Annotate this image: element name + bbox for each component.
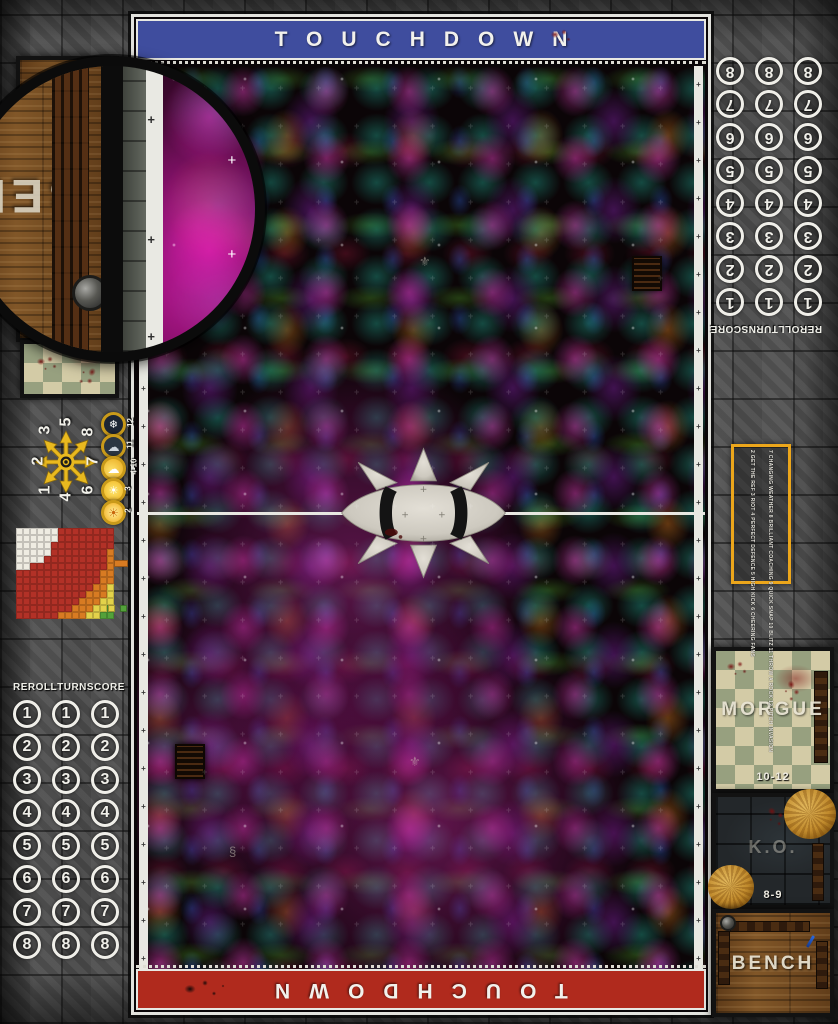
track-row: 888 <box>716 57 822 85</box>
grid-crosshair-icon: + <box>316 159 321 169</box>
range-cell <box>93 549 100 556</box>
svg-text:+: + <box>420 534 428 545</box>
grid-crosshair-icon: + <box>506 805 511 815</box>
sideline-tick-icon: + <box>694 270 703 279</box>
track-row: 444 <box>716 189 822 217</box>
track-number-cell: 2 <box>794 255 822 283</box>
range-cell <box>30 542 37 549</box>
hay-bale-icon <box>708 865 754 909</box>
grid-crosshair-icon: + <box>620 691 625 701</box>
grid-crosshair-icon: + <box>582 805 587 815</box>
grid-crosshair-icon: + <box>278 615 283 625</box>
grid-crosshair-icon: + <box>468 729 473 739</box>
grid-crosshair-icon: + <box>658 881 663 891</box>
grid-crosshair-icon: + <box>658 805 663 815</box>
grid-crosshair-icon: + <box>278 387 283 397</box>
grid-crosshair-icon: + <box>354 805 359 815</box>
range-cell <box>65 591 72 598</box>
range-cell <box>58 542 65 549</box>
grid-crosshair-icon: + <box>278 235 283 245</box>
range-cell <box>44 584 51 591</box>
grid-crosshair-icon: + <box>354 197 359 207</box>
grid-crosshair-icon: + <box>164 805 169 815</box>
grid-crosshair-icon: + <box>544 159 549 169</box>
grid-crosshair-icon: + <box>316 881 321 891</box>
grid-crosshair-icon: + <box>582 83 587 93</box>
grid-crosshair-icon: + <box>354 539 359 549</box>
range-cell <box>44 542 51 549</box>
grid-crosshair-icon: + <box>544 539 549 549</box>
grid-crosshair-icon: + <box>620 349 625 359</box>
range-cell <box>93 542 100 549</box>
grid-crosshair-icon: + <box>278 805 283 815</box>
range-cell <box>72 584 79 591</box>
grid-crosshair-icon: + <box>544 83 549 93</box>
grid-crosshair-icon: + <box>316 691 321 701</box>
range-cell <box>16 528 23 535</box>
range-cell <box>30 605 37 612</box>
grid-crosshair-icon: + <box>240 805 245 815</box>
range-cell <box>72 577 79 584</box>
grid-crosshair-icon: + <box>506 653 511 663</box>
range-cell <box>79 598 86 605</box>
svg-text:+: + <box>401 510 409 521</box>
dugout-right-morgue: MORGUE 10-12 <box>712 647 834 793</box>
range-cell <box>100 577 107 584</box>
track-number-cell: 1 <box>755 288 783 316</box>
grid-crosshair-icon: + <box>278 121 283 131</box>
sideline-tick-icon: + <box>694 688 703 697</box>
grid-crosshair-icon: + <box>354 919 359 929</box>
pass-range-ruler <box>16 528 114 619</box>
grid-crosshair-icon: + <box>392 349 397 359</box>
range-cell <box>58 528 65 535</box>
grid-crosshair-icon: + <box>430 691 435 701</box>
grid-crosshair-icon: + <box>544 691 549 701</box>
range-legend-long <box>114 560 128 567</box>
weather-range-label: 11 <box>126 440 135 448</box>
grid-crosshair-icon: + <box>506 919 511 929</box>
scatter-direction-number: 8 <box>79 428 97 437</box>
grid-crosshair-icon: + <box>582 691 587 701</box>
range-cell <box>93 528 100 535</box>
crosshair-icon: + <box>228 246 237 263</box>
grid-crosshair-icon: + <box>544 197 549 207</box>
dugout-right-ko: K.O. 8-9 <box>712 793 834 909</box>
morgue-range-label: 10-12 <box>716 771 830 783</box>
range-cell <box>30 612 37 619</box>
kickoff-table-text: 7 CHANGING WEATHER 8 BRILLIANT COACHING … <box>737 450 785 578</box>
ko-label: K.O. <box>716 837 830 858</box>
track-number-cell: 2 <box>52 733 80 761</box>
sideline-tick-icon: + <box>694 878 703 887</box>
track-number-cell: 7 <box>755 90 783 118</box>
range-cell <box>72 563 79 570</box>
grid-crosshair-icon: + <box>392 881 397 891</box>
grid-crosshair-icon: + <box>316 615 321 625</box>
grid-crosshair-icon: + <box>392 729 397 739</box>
range-cell <box>58 605 65 612</box>
range-cell <box>79 612 86 619</box>
grid-crosshair-icon: + <box>620 273 625 283</box>
grid-crosshair-icon: + <box>354 235 359 245</box>
range-cell <box>58 591 65 598</box>
grid-crosshair-icon: + <box>240 463 245 473</box>
grid-crosshair-icon: + <box>468 653 473 663</box>
track-row: 111 <box>13 700 119 728</box>
range-cell <box>23 605 30 612</box>
grid-crosshair-icon: + <box>430 425 435 435</box>
track-number-cell: 4 <box>716 189 744 217</box>
grid-crosshair-icon: + <box>392 83 397 93</box>
grid-crosshair-icon: + <box>430 387 435 397</box>
range-cell <box>37 542 44 549</box>
crest-glyph-icon: ⚜ <box>419 254 431 270</box>
grid-crosshair-icon: + <box>620 235 625 245</box>
grid-crosshair-icon: + <box>468 425 473 435</box>
range-cell <box>23 598 30 605</box>
sideline-tick-icon: + <box>694 460 703 469</box>
grid-crosshair-icon: + <box>354 273 359 283</box>
range-cell <box>51 528 58 535</box>
pen-mark-icon <box>806 935 815 948</box>
grid-crosshair-icon: + <box>506 767 511 777</box>
grid-crosshair-icon: + <box>278 425 283 435</box>
grid-crosshair-icon: + <box>430 653 435 663</box>
morgue-label: MORGUE <box>716 699 830 721</box>
range-cell <box>30 570 37 577</box>
range-cell <box>86 598 93 605</box>
sideline-tick-icon: + <box>694 726 703 735</box>
grid-crosshair-icon: + <box>202 539 207 549</box>
grid-crosshair-icon: + <box>544 349 549 359</box>
range-cell <box>30 591 37 598</box>
sideline-tick-icon: + <box>694 954 703 963</box>
grid-crosshair-icon: + <box>658 197 663 207</box>
crosshair-icon: + <box>147 232 155 247</box>
range-cell <box>100 563 107 570</box>
grid-crosshair-icon: + <box>392 387 397 397</box>
range-cell <box>79 577 86 584</box>
range-cell <box>86 528 93 535</box>
range-cell <box>65 542 72 549</box>
grid-crosshair-icon: + <box>620 843 625 853</box>
grid-crosshair-icon: + <box>620 425 625 435</box>
range-cell <box>72 570 79 577</box>
hay-bale-icon <box>784 789 836 839</box>
range-cell <box>79 584 86 591</box>
track-row: 333 <box>716 222 822 250</box>
range-cell <box>72 542 79 549</box>
track-number-cell: 4 <box>755 189 783 217</box>
range-cell <box>72 549 79 556</box>
sideline-tick-icon: + <box>139 726 148 735</box>
grid-crosshair-icon: + <box>240 425 245 435</box>
range-cell <box>79 570 86 577</box>
range-cell <box>79 605 86 612</box>
track-row: 888 <box>13 931 119 959</box>
grid-crosshair-icon: + <box>430 463 435 473</box>
range-cell <box>16 535 23 542</box>
range-cell <box>58 584 65 591</box>
grid-crosshair-icon: + <box>582 463 587 473</box>
grid-crosshair-icon: + <box>202 767 207 777</box>
grid-crosshair-icon: + <box>506 501 511 511</box>
reroll-header: REROLL <box>778 323 822 334</box>
track-number-cell: 4 <box>52 799 80 827</box>
range-cell <box>58 563 65 570</box>
track-number-cell: 8 <box>755 57 783 85</box>
grid-crosshair-icon: + <box>468 767 473 777</box>
grid-crosshair-icon: + <box>392 653 397 663</box>
grid-crosshair-icon: + <box>506 273 511 283</box>
grid-crosshair-icon: + <box>468 881 473 891</box>
grid-crosshair-icon: + <box>202 729 207 739</box>
grid-crosshair-icon: + <box>164 539 169 549</box>
grid-crosshair-icon: + <box>164 615 169 625</box>
range-cell <box>16 598 23 605</box>
skull-glyph-icon: ⚜ <box>409 754 421 770</box>
grid-crosshair-icon: + <box>506 425 511 435</box>
scatter-direction-number: 4 <box>57 493 75 502</box>
sideline-tick-icon: + <box>694 80 703 89</box>
grid-crosshair-icon: + <box>164 881 169 891</box>
range-cell <box>51 549 58 556</box>
grid-crosshair-icon: + <box>658 919 663 929</box>
sideline-tick-icon: + <box>694 916 703 925</box>
grid-crosshair-icon: + <box>316 501 321 511</box>
range-cell <box>93 535 100 542</box>
grid-crosshair-icon: + <box>202 577 207 587</box>
grid-crosshair-icon: + <box>582 425 587 435</box>
range-cell <box>44 570 51 577</box>
grid-crosshair-icon: + <box>506 577 511 587</box>
range-cell <box>93 584 100 591</box>
range-cell <box>37 577 44 584</box>
grid-crosshair-icon: + <box>316 387 321 397</box>
ko-range-label: 8-9 <box>716 889 830 901</box>
inset-stone-gap <box>123 66 146 352</box>
range-cell <box>100 584 107 591</box>
sideline-tick-icon: + <box>139 954 148 963</box>
grid-crosshair-icon: + <box>468 121 473 131</box>
grid-crosshair-icon: + <box>620 919 625 929</box>
grid-crosshair-icon: + <box>278 691 283 701</box>
grid-crosshair-icon: + <box>316 653 321 663</box>
grid-crosshair-icon: + <box>468 501 473 511</box>
range-cell <box>86 570 93 577</box>
grid-crosshair-icon: + <box>392 615 397 625</box>
track-number-cell: 2 <box>91 733 119 761</box>
track-left: REROLL TURN SCORE 1112223334445556667778… <box>13 682 119 964</box>
reroll-header: REROLL <box>13 682 57 693</box>
track-number-cell: 2 <box>755 255 783 283</box>
grid-crosshair-icon: + <box>468 463 473 473</box>
grid-crosshair-icon: + <box>316 311 321 321</box>
range-cell <box>65 577 72 584</box>
grid-crosshair-icon: + <box>278 273 283 283</box>
turn-header: TURN <box>748 323 778 334</box>
grid-crosshair-icon: + <box>354 349 359 359</box>
grid-crosshair-icon: + <box>658 501 663 511</box>
range-cell <box>65 528 72 535</box>
grid-crosshair-icon: + <box>658 539 663 549</box>
grid-crosshair-icon: + <box>506 539 511 549</box>
range-cell <box>65 584 72 591</box>
grid-crosshair-icon: + <box>392 273 397 283</box>
range-cell <box>37 605 44 612</box>
range-cell <box>107 549 114 556</box>
grid-crosshair-icon: + <box>658 767 663 777</box>
grid-crosshair-icon: + <box>240 691 245 701</box>
inset-pitch-texture: + + <box>163 66 255 352</box>
grid-crosshair-icon: + <box>316 805 321 815</box>
grid-crosshair-icon: + <box>278 729 283 739</box>
grid-crosshair-icon: + <box>278 501 283 511</box>
grid-crosshair-icon: + <box>316 843 321 853</box>
range-cell <box>16 556 23 563</box>
touchdown-bottom-label: TOUCHDOWN <box>256 978 587 1002</box>
track-number-cell: 4 <box>794 189 822 217</box>
ink-splatter-icon <box>172 974 232 1004</box>
sideline-tick-icon: + <box>139 498 148 507</box>
sideline-tick-icon: + <box>694 498 703 507</box>
track-number-cell: 6 <box>716 123 744 151</box>
track-row: 222 <box>13 733 119 761</box>
grid-crosshair-icon: + <box>468 691 473 701</box>
range-cell <box>100 591 107 598</box>
kickoff-entries-2-6: 2 GET THE REF 3 RIOT 4 PERFECT DEFENCE 5… <box>749 450 755 578</box>
grid-crosshair-icon: + <box>316 235 321 245</box>
track-number-cell: 2 <box>716 255 744 283</box>
grid-crosshair-icon: + <box>506 843 511 853</box>
grid-crosshair-icon: + <box>468 577 473 587</box>
grid-crosshair-icon: + <box>354 501 359 511</box>
grid-crosshair-icon: + <box>658 311 663 321</box>
range-cell <box>58 598 65 605</box>
dugout-right-bench: BENCH <box>712 909 834 1017</box>
range-cell <box>30 598 37 605</box>
score-header: SCORE <box>710 323 748 334</box>
grid-crosshair-icon: + <box>278 197 283 207</box>
range-cell <box>44 535 51 542</box>
sideline-tick-icon: + <box>694 308 703 317</box>
grid-crosshair-icon: + <box>316 463 321 473</box>
range-cell <box>86 542 93 549</box>
range-cell <box>23 570 30 577</box>
grid-crosshair-icon: + <box>202 425 207 435</box>
range-cell <box>51 598 58 605</box>
track-row: 666 <box>716 123 822 151</box>
range-cell <box>30 535 37 542</box>
grid-crosshair-icon: + <box>544 121 549 131</box>
range-cell <box>30 528 37 535</box>
range-cell <box>107 570 114 577</box>
grid-crosshair-icon: + <box>240 539 245 549</box>
track-number-cell: 5 <box>13 832 41 860</box>
range-cell <box>37 591 44 598</box>
range-cell <box>107 563 114 570</box>
range-cell <box>100 605 107 612</box>
grid-crosshair-icon: + <box>468 615 473 625</box>
range-cell <box>44 577 51 584</box>
range-cell <box>37 563 44 570</box>
range-cell <box>93 591 100 598</box>
sideline-tick-icon: + <box>139 764 148 773</box>
sideline-tick-icon: + <box>139 384 148 393</box>
range-cell <box>72 528 79 535</box>
sideline-tick-icon: + <box>694 156 703 165</box>
track-number-cell: 6 <box>91 865 119 893</box>
grid-crosshair-icon: + <box>544 729 549 739</box>
sideline-tick-icon: + <box>694 194 703 203</box>
grid-crosshair-icon: + <box>620 577 625 587</box>
track-row: 222 <box>716 255 822 283</box>
wood-beam <box>730 921 810 932</box>
touchdown-top-label: TOUCHDOWN <box>256 28 587 52</box>
grid-crosshair-icon: + <box>164 463 169 473</box>
grid-crosshair-icon: + <box>354 83 359 93</box>
magnifier-inset: BENCH + + + + + <box>0 56 265 362</box>
range-cell <box>44 612 51 619</box>
grid-crosshair-icon: + <box>316 539 321 549</box>
grid-crosshair-icon: + <box>544 387 549 397</box>
grid-crosshair-icon: + <box>506 311 511 321</box>
range-cell <box>93 598 100 605</box>
grid-crosshair-icon: + <box>430 539 435 549</box>
grid-crosshair-icon: + <box>430 767 435 777</box>
range-cell <box>58 556 65 563</box>
grid-crosshair-icon: + <box>278 159 283 169</box>
grid-crosshair-icon: + <box>582 501 587 511</box>
grid-crosshair-icon: + <box>354 311 359 321</box>
range-cell <box>23 563 30 570</box>
grid-crosshair-icon: + <box>164 501 169 511</box>
sideline-tick-icon: + <box>694 422 703 431</box>
grid-crosshair-icon: + <box>354 729 359 739</box>
range-cell <box>16 577 23 584</box>
grid-crosshair-icon: + <box>658 273 663 283</box>
grid-crosshair-icon: + <box>354 767 359 777</box>
grid-crosshair-icon: + <box>316 729 321 739</box>
grid-crosshair-icon: + <box>468 159 473 169</box>
grid-crosshair-icon: + <box>202 463 207 473</box>
range-cell <box>37 556 44 563</box>
grid-crosshair-icon: + <box>582 273 587 283</box>
range-cell <box>65 549 72 556</box>
grid-crosshair-icon: + <box>658 387 663 397</box>
grid-crosshair-icon: + <box>620 463 625 473</box>
range-cell <box>16 605 23 612</box>
grid-crosshair-icon: + <box>620 311 625 321</box>
range-cell <box>107 591 114 598</box>
range-cell <box>100 542 107 549</box>
grid-crosshair-icon: + <box>392 463 397 473</box>
range-cell <box>86 563 93 570</box>
range-cell <box>30 577 37 584</box>
track-number-cell: 4 <box>91 799 119 827</box>
grid-crosshair-icon: + <box>430 805 435 815</box>
track-number-cell: 8 <box>13 931 41 959</box>
grid-crosshair-icon: + <box>202 919 207 929</box>
kickoff-entries-7-12: 7 CHANGING WEATHER 8 BRILLIANT COACHING … <box>767 450 773 578</box>
range-cell <box>79 542 86 549</box>
grid-crosshair-icon: + <box>582 577 587 587</box>
grid-crosshair-icon: + <box>658 577 663 587</box>
grid-crosshair-icon: + <box>240 843 245 853</box>
range-cell <box>30 563 37 570</box>
blood-splatter-icon <box>32 352 62 376</box>
